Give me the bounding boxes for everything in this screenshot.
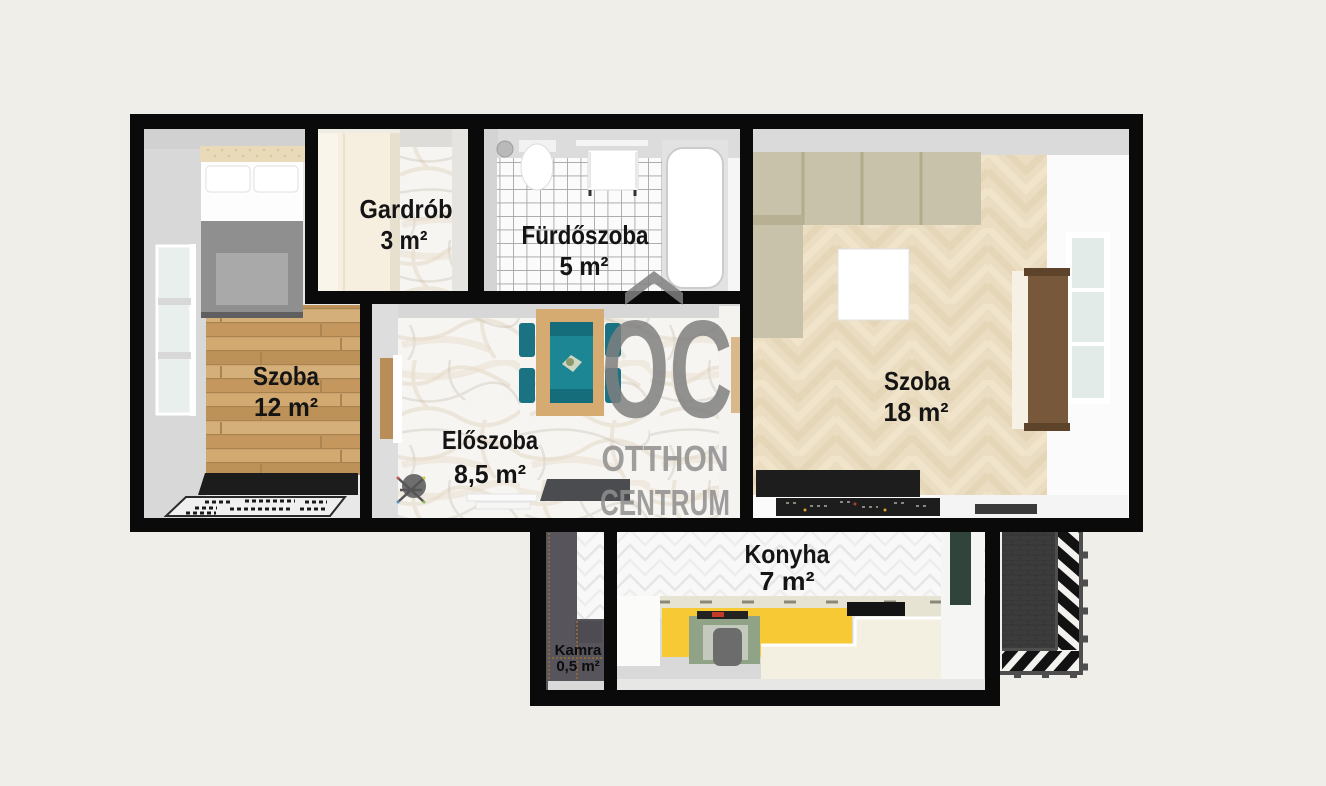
svg-text:7 m²: 7 m² — [760, 566, 815, 596]
svg-text:OC: OC — [602, 292, 733, 447]
svg-text:5 m²: 5 m² — [560, 251, 609, 281]
svg-text:0,5 m²: 0,5 m² — [556, 658, 599, 675]
svg-text:Szoba: Szoba — [253, 361, 319, 391]
svg-text:Előszoba: Előszoba — [442, 425, 538, 455]
svg-text:12 m²: 12 m² — [254, 392, 318, 422]
svg-text:Fürdőszoba: Fürdőszoba — [522, 220, 649, 250]
svg-text:OTTHON: OTTHON — [602, 438, 729, 479]
svg-text:Szoba: Szoba — [884, 366, 950, 396]
svg-text:Kamra: Kamra — [555, 642, 602, 659]
svg-text:Gardrób: Gardrób — [360, 194, 453, 224]
svg-text:8,5 m²: 8,5 m² — [454, 459, 526, 489]
svg-text:Konyha: Konyha — [745, 539, 830, 569]
svg-text:3 m²: 3 m² — [381, 225, 428, 255]
svg-text:18 m²: 18 m² — [884, 397, 949, 427]
svg-text:CENTRUM: CENTRUM — [600, 482, 730, 523]
